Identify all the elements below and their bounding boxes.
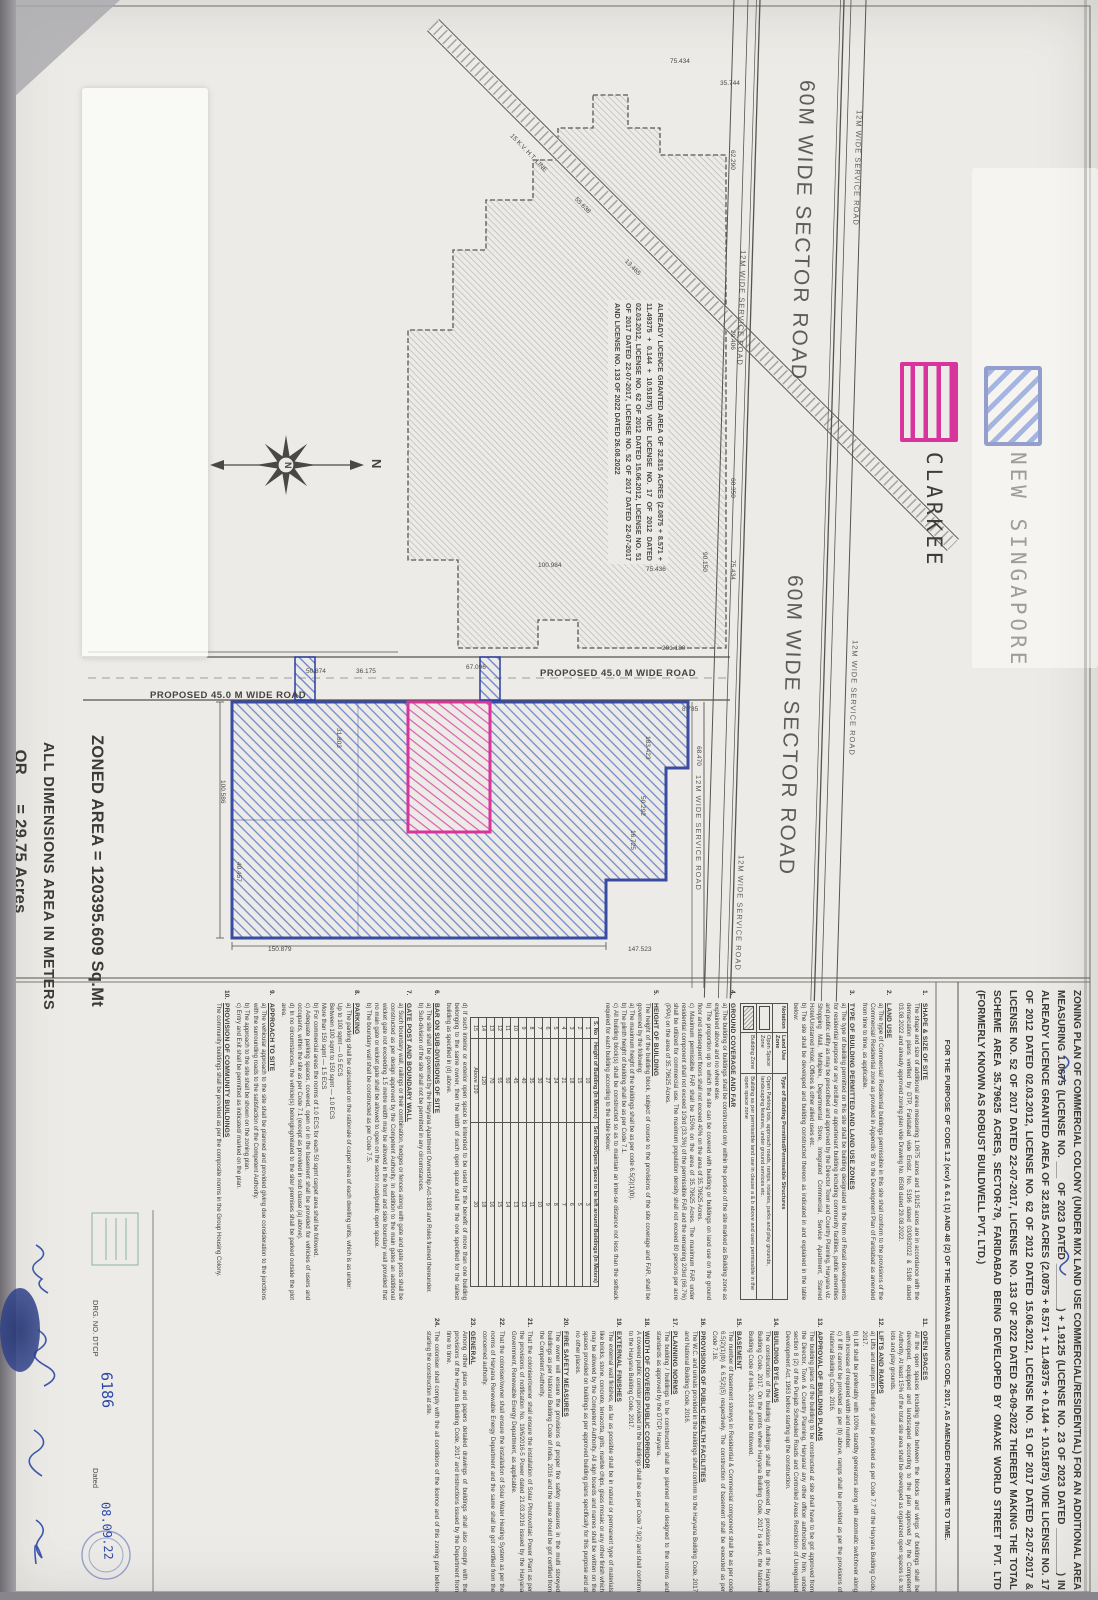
note-item: 19.EXTERNAL FINISHESThe external wall fi… (573, 1318, 621, 1592)
licensed-area-note: ALREADY LICENCE GRANTED AREA OF 32.815 A… (608, 300, 668, 564)
building-zone-swatch (743, 1006, 754, 1030)
dated-label: Dated (91, 1468, 100, 1488)
zoned-area-line1: ZONED AREA = 120395.609 Sq.Mt (83, 735, 109, 1007)
note-item: 22.That the coloniser/owner shall ensure… (480, 1318, 504, 1592)
note-item: 12.LIFTS AND RAMPSa) Lifts and ramps in … (827, 1318, 884, 1592)
north-label: N (369, 459, 384, 468)
dimension-label: 36.175 (356, 668, 376, 675)
note-item: 17.PLANNING NORMSThe building / building… (654, 1318, 678, 1592)
dimension-label: 29.406 (729, 330, 736, 350)
compass-center-label: N (283, 462, 293, 469)
dimension-label: 31.803 (335, 728, 342, 748)
dimensions-note: ALL DIMENSIONS AREA IN METERS (40, 742, 56, 1010)
note-item: 18.WIDTH OF COVERED PUBLIC CORRIDORA cov… (626, 1318, 650, 1592)
dimension-label: 75.434 (729, 560, 736, 580)
note-item: 24.The coloniser shall comply with the a… (424, 1318, 440, 1592)
dimension-label: 90.150 (701, 552, 708, 572)
note-item: 11.OPEN SPACESAll the open spaces includ… (888, 1318, 928, 1592)
dated-handwritten: 08.09.22 (98, 1502, 115, 1560)
dimension-label: 75.436 (646, 566, 666, 573)
dimension-label: 100.984 (538, 562, 562, 569)
dimension-label: 8.785 (682, 706, 698, 713)
note-item: 10.PROVISION OF COMMUNITY BUILDINGSThe c… (214, 990, 230, 1300)
dimension-label: 62.290 (729, 150, 736, 170)
proposed-road-label-2: PROPOSED 45.0 M WIDE ROAD (150, 690, 306, 701)
licensed-area-polygon (408, 95, 726, 648)
dimension-label: 100.586 (219, 780, 226, 804)
zoned-area-line2: OR = 29.75 Acres (7, 735, 33, 1007)
open-space-swatch (759, 1006, 770, 1030)
note-item: 9.APPROACH TO SITEa) The vehicular appro… (234, 990, 274, 1300)
legend-swatch-new-singapore (984, 366, 1042, 446)
purpose-line: FOR THE PURPOSE OF CODE 1.2 (xcv) & 6.1 … (943, 990, 952, 1590)
setback-table: S. NoHeight of Building (In Meters)Set B… (470, 1017, 599, 1287)
note-item: 6.BAR ON SUB-DIVISIONS OF SITEa) The sit… (416, 990, 440, 1300)
note-item: 15.BASEMENTThe number of basement storey… (710, 1318, 742, 1592)
dimension-label: 183.423 (644, 736, 651, 760)
note-item: 1.SHAPE & SIZE OF SITEThe shape and size… (896, 990, 928, 1300)
dimension-label: 50.292 (639, 796, 646, 816)
note-item: 23.GENERALAmong other plans and papers d… (444, 1318, 476, 1592)
scanned-zoning-plan: NEW SINGAPORE CLARKEE 60M WIDE SECTOR RO… (0, 0, 1098, 1600)
legend-label-new-singapore: NEW SINGAPORE (1006, 452, 1030, 668)
dimension-label: 40.457 (235, 862, 242, 882)
notes-column-b: 11.OPEN SPACESAll the open spaces includ… (420, 1318, 928, 1592)
dimension-label: 50.874 (306, 668, 326, 675)
dimension-label: 201.180 (662, 645, 686, 652)
dimension-label: 60.350 (729, 478, 736, 498)
dimension-label: 35.744 (720, 80, 740, 87)
note-item: 16.PROVISIONS OF PUBLIC HEALTH FACILITIE… (682, 1318, 706, 1592)
drg-no-label: DRG. NO. DTCP (91, 1300, 100, 1357)
drg-no-handwritten: 6186 (97, 1372, 116, 1409)
office-stamp (92, 1213, 138, 1265)
note-item: 20.FIRE SAFETY MEASURESThe owner will en… (537, 1318, 569, 1592)
dimension-label: 67.096 (466, 664, 486, 671)
note-item: 14.BUILDING BYE-LAWSThe construction of … (746, 1318, 778, 1592)
drawing-sheet: NEW SINGAPORE CLARKEE 60M WIDE SECTOR RO… (0, 0, 1098, 1600)
dimension-label: 16.725 (629, 830, 636, 850)
note-item: 7.GATE POST AND BOUNDARY WALLa) Such bou… (364, 990, 412, 1300)
service-road-label-5: 12M WIDE SERVICE ROAD (694, 775, 703, 891)
note-item: 5.HEIGHT OF BUILDINGThe height of the bu… (444, 990, 659, 1300)
dimension-label: 68.470 (695, 746, 702, 766)
legend-label-clarkee: CLARKEE (922, 452, 946, 569)
proposed-road-label-1: PROPOSED 45.0 M WIDE ROAD (540, 668, 696, 679)
note-item: 8.PARKINGa) The parking shall be calcula… (279, 990, 360, 1300)
note-item: 21.That the coloniser/owner shall ensure… (509, 1318, 533, 1592)
notes-column-a: 1.SHAPE & SIZE OF SITEThe shape and size… (210, 990, 928, 1300)
drawing-title: ZONING PLAN OF COMMERCIAL COLONY (UNDER … (972, 990, 1084, 1590)
dimension-label: 150.879 (268, 946, 292, 953)
dimension-label: 75.434 (670, 58, 690, 65)
dimension-label: 147.523 (628, 946, 652, 953)
note-item: 13.APPROVAL OF BUILDING PLANSThe buildin… (783, 1318, 823, 1592)
note-item: 3.TYPE OF BUILDING PERMITTED AND LAND US… (740, 990, 856, 1300)
land-use-table: NotationLand Use ZoneType of Building Pe… (740, 1003, 788, 1300)
note-item: 2.LAND USEa) The type of Commercial/ Res… (859, 990, 891, 1300)
legend-swatch-clarkee (900, 362, 958, 442)
note-item: 4.GROUND COVERAGE AND FARa) The building… (663, 990, 736, 1300)
zoned-area-note: ZONED AREA = 120395.609 Sq.Mt OR = 29.75… (0, 735, 160, 1007)
